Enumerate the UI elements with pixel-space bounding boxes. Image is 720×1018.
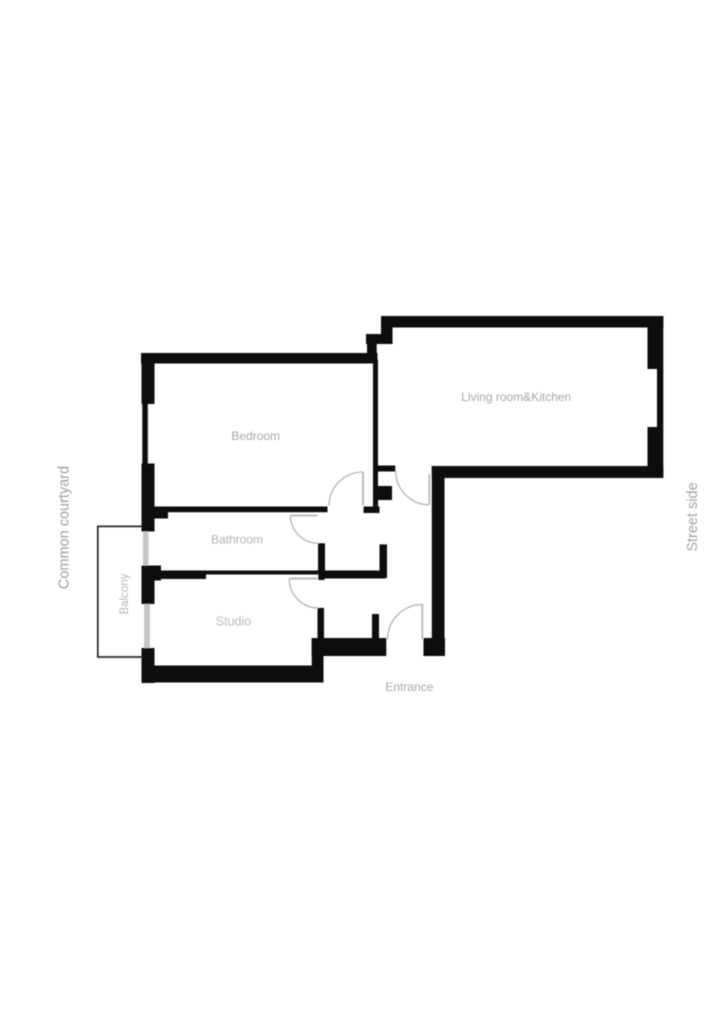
svg-text:Street side: Street side [685, 482, 701, 551]
svg-text:Balcony: Balcony [119, 573, 131, 614]
svg-text:Studio: Studio [216, 615, 251, 629]
svg-text:Entrance: Entrance [385, 680, 433, 694]
svg-text:Bedroom: Bedroom [231, 429, 280, 443]
svg-text:Living room&Kitchen: Living room&Kitchen [461, 390, 571, 404]
svg-text:Bathroom: Bathroom [211, 533, 263, 547]
svg-text:Common courtyard: Common courtyard [56, 466, 72, 589]
